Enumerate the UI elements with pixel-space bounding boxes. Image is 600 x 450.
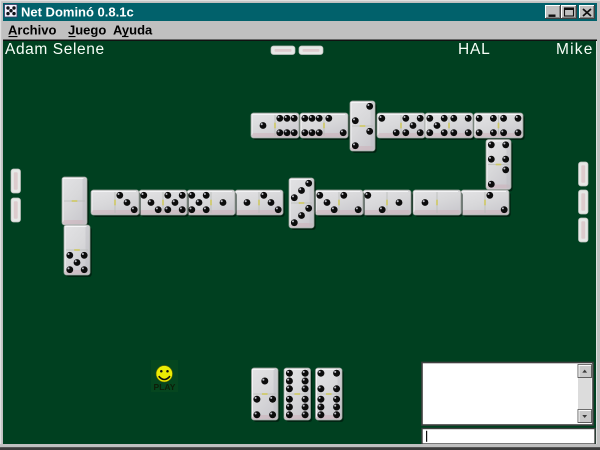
svg-text:Mike: Mike: [556, 41, 594, 58]
svg-text:Net Dominó 0.8.1c: Net Dominó 0.8.1c: [21, 5, 134, 20]
svg-text:PLAY: PLAY: [154, 382, 176, 392]
svg-text:Ayuda: Ayuda: [113, 23, 153, 38]
svg-text:HAL: HAL: [458, 41, 491, 58]
svg-text:Adam Selene: Adam Selene: [5, 41, 105, 58]
svg-text:Archivo: Archivo: [8, 23, 56, 38]
svg-text:Juego: Juego: [68, 23, 106, 38]
